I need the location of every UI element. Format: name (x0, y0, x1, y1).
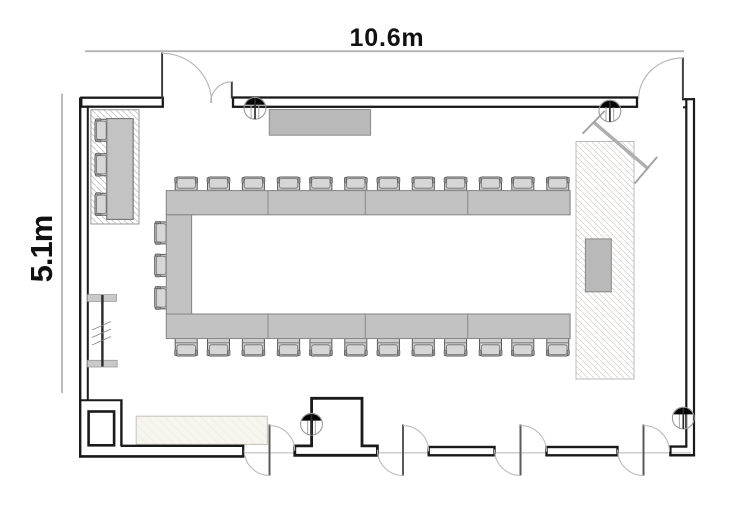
svg-text:5.1m: 5.1m (24, 216, 59, 283)
svg-text:10.6m: 10.6m (350, 24, 425, 52)
